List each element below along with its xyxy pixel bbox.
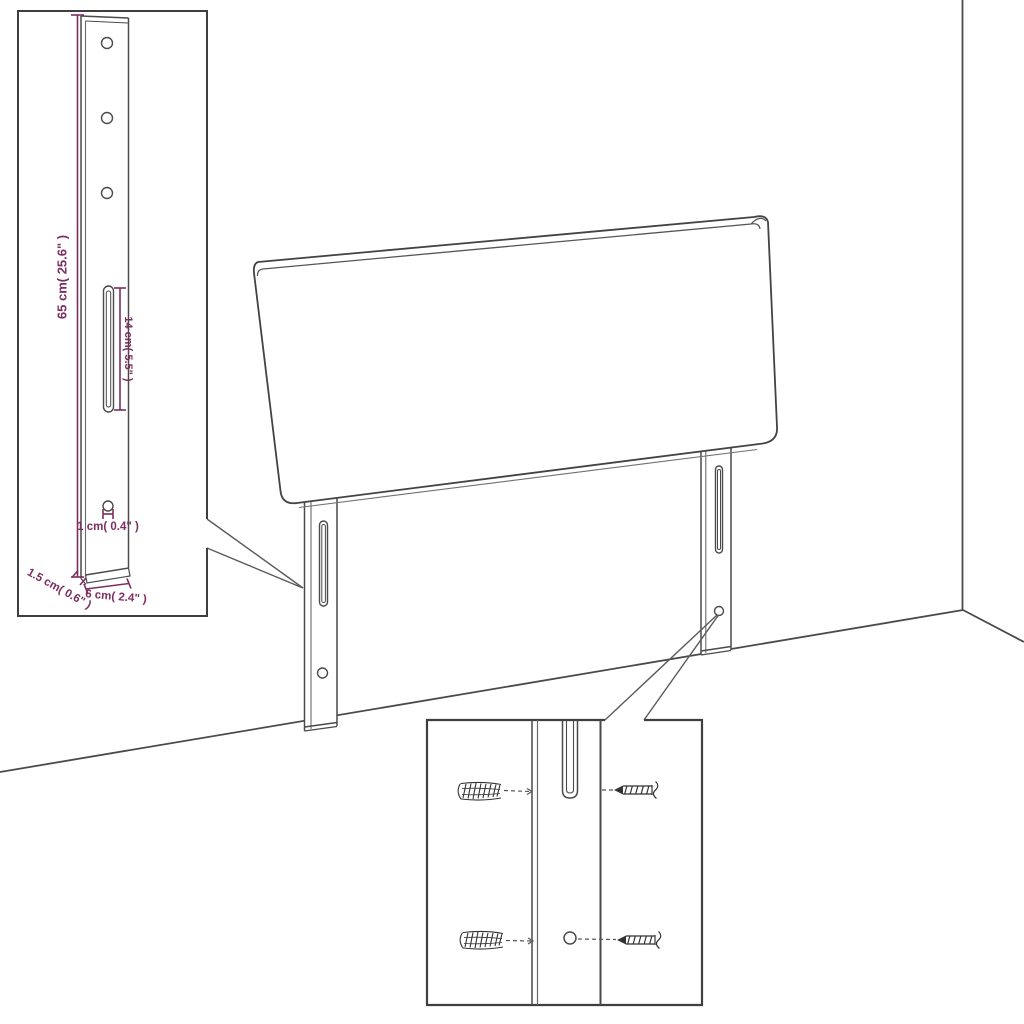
leg-strip-closeup xyxy=(532,720,601,1005)
left-inset-leader-lines xyxy=(207,519,303,588)
strip-hole xyxy=(564,932,576,944)
bracket-hole-bottom xyxy=(102,188,113,199)
right-mounting-leg xyxy=(701,436,731,655)
screw-icon xyxy=(614,782,658,799)
strip-slot xyxy=(563,720,578,798)
dimension-label-hole-diameter: 1 cm( 0.4" ) xyxy=(77,521,139,533)
floor-line-right xyxy=(963,610,1024,642)
dimension-label-leg-height: 65 cm( 25.6" ) xyxy=(55,235,70,319)
diagram-canvas: 65 cm( 25.6" ) 14 cm( 5.5" ) 1 cm( 0.4" … xyxy=(0,0,1024,1024)
dimension-lines xyxy=(71,15,131,594)
hardware-detail-inset xyxy=(427,720,702,1005)
left-leg-hole xyxy=(318,668,328,678)
bracket-hole-middle xyxy=(102,113,113,124)
dimension-65cm-line xyxy=(71,15,84,577)
headboard-line-drawing xyxy=(0,0,1024,1024)
bracket-hole-top xyxy=(102,38,113,49)
leg-detail-bracket xyxy=(81,16,130,585)
bracket-small-hole xyxy=(103,501,113,511)
bracket-slot xyxy=(104,286,114,412)
headboard-panel xyxy=(254,216,777,507)
hardware-detail-inset-box xyxy=(427,720,702,1005)
right-leg-hole xyxy=(715,607,724,616)
alignment-dashed-lines xyxy=(504,790,616,941)
dimension-label-slot-length: 14 cm( 5.5" ) xyxy=(122,316,134,381)
wall-plug-icon xyxy=(458,782,501,800)
left-mounting-leg xyxy=(304,486,337,731)
floor-line-left xyxy=(0,610,963,772)
